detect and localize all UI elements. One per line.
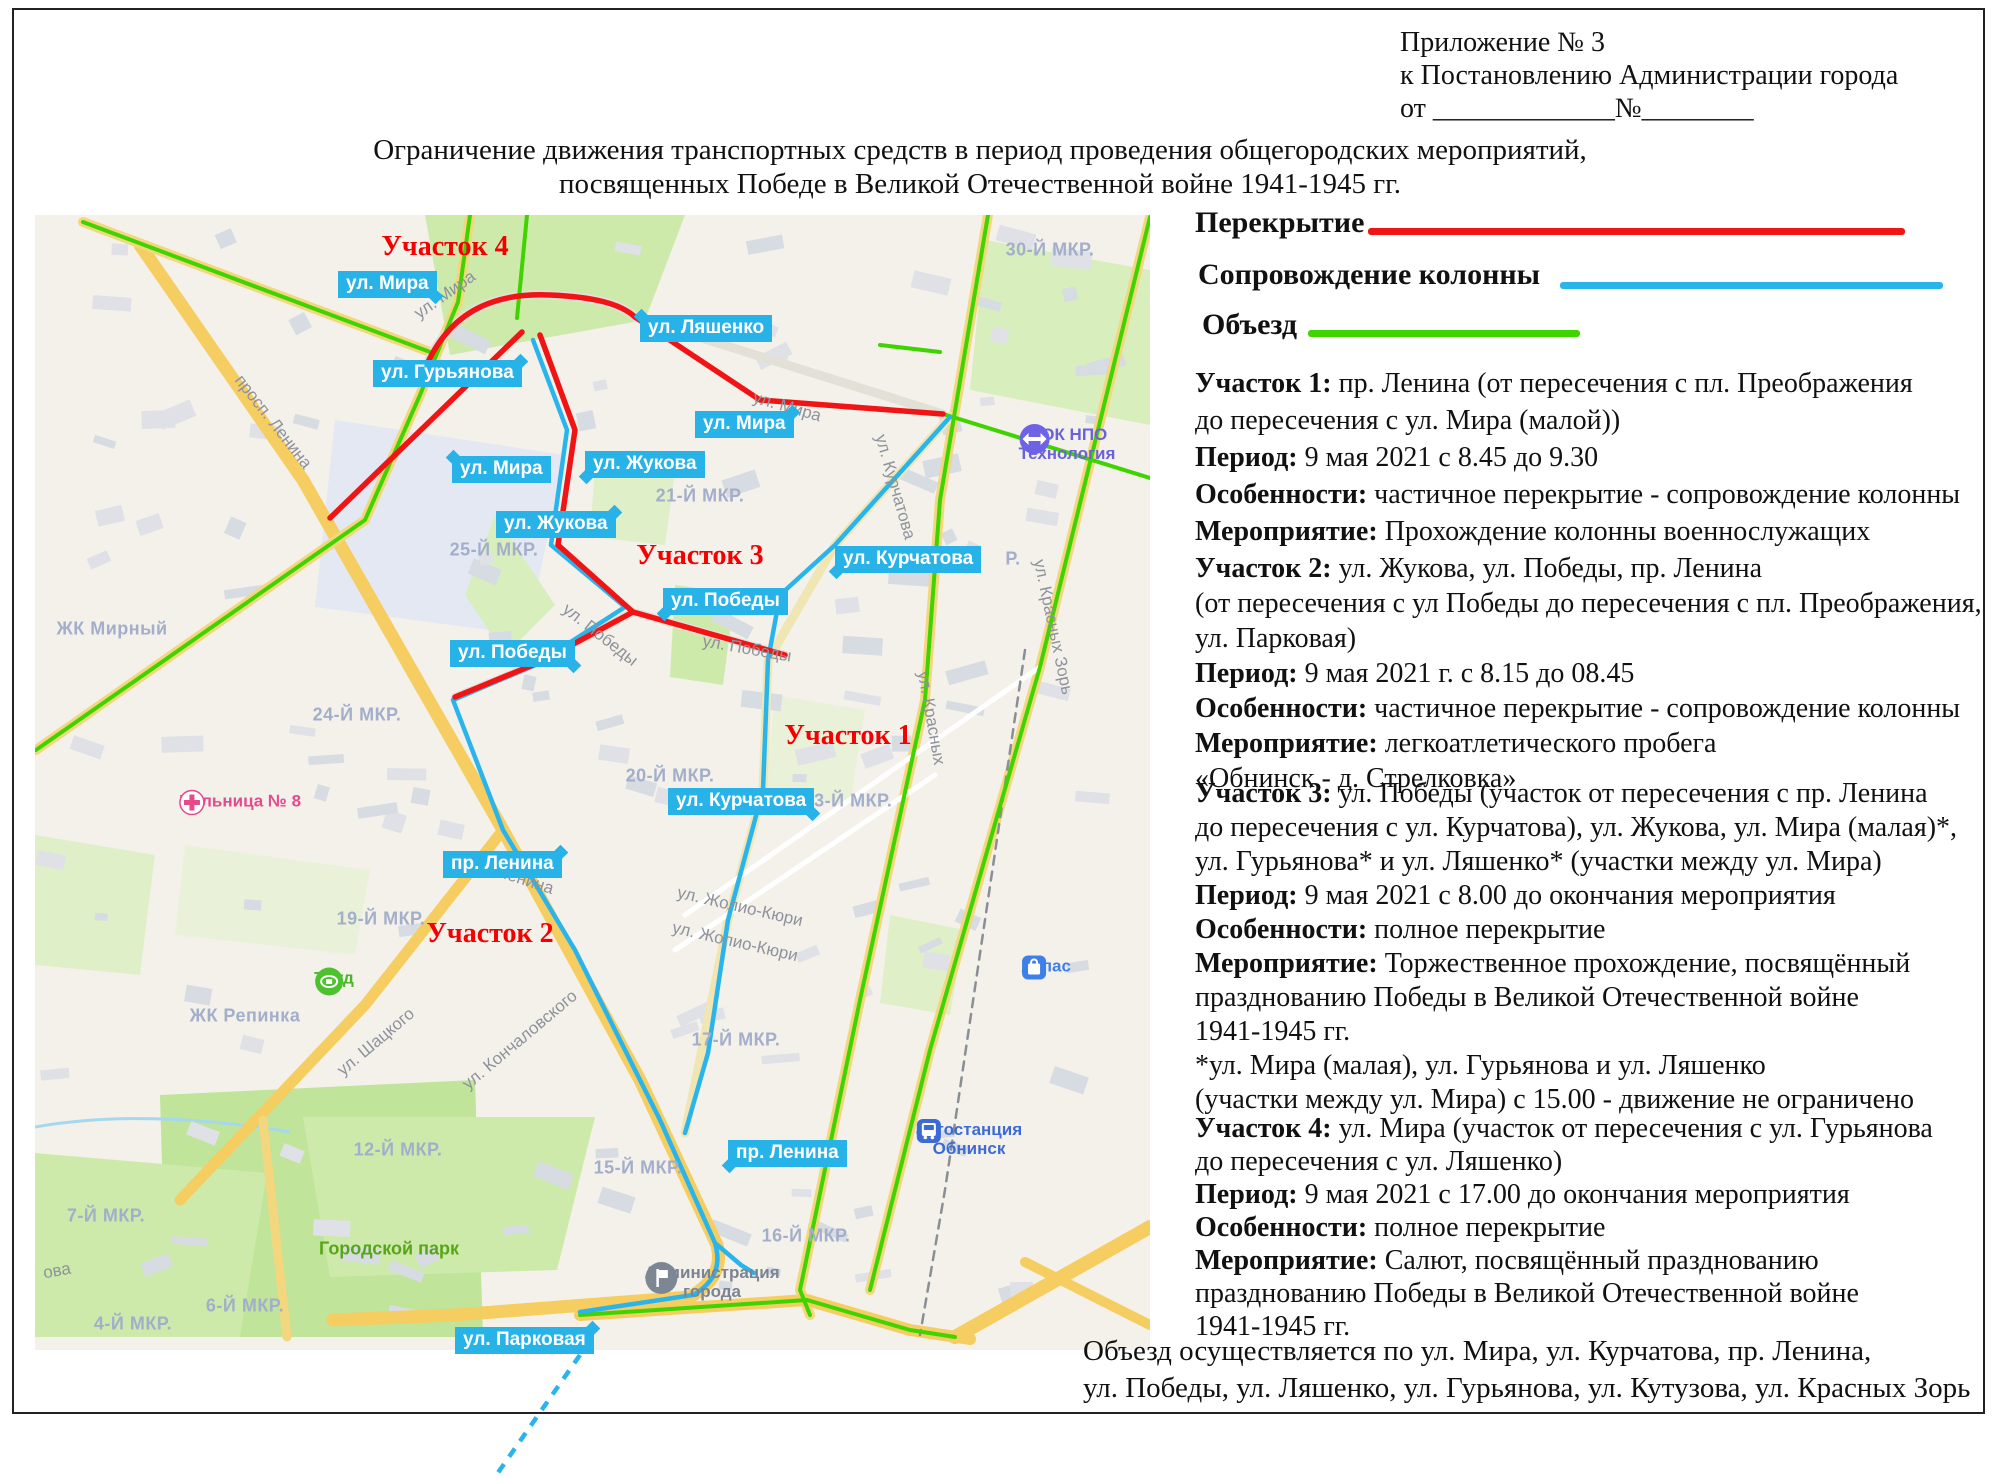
city-map: ул. Мираул. Ляшенкоул. Гурьяноваул. Мира…: [35, 215, 1150, 1477]
badge-pointer: [579, 469, 595, 485]
area-label: 24-Й МКР.: [313, 705, 402, 726]
annex-header: Приложение № 3к Постановлению Администра…: [1400, 26, 1898, 125]
legend-label-1: Перекрытие: [1195, 206, 1364, 240]
street-name-label: ул. Курчатова: [870, 432, 919, 541]
area-label: 25-Й МКР.: [450, 540, 539, 561]
document-page: Приложение № 3к Постановлению Администра…: [0, 0, 2000, 1477]
annex-line-3: от _____________№________: [1400, 92, 1898, 125]
detour-note: Объезд осуществляется по ул. Мира, ул. К…: [1083, 1333, 1970, 1407]
section-line: празднованию Победы в Великой Отечествен…: [1195, 1277, 1933, 1310]
place-shop: Атлас: [1021, 955, 1071, 976]
document-title: Ограничение движения транспортных средст…: [0, 133, 1960, 201]
street-badge-пр-ленина: пр. Ленина: [728, 1140, 847, 1167]
map-section-label-2: Участок 3: [636, 540, 763, 572]
badge-pointer: [634, 309, 650, 325]
street-name-label: ул. Победы: [701, 631, 793, 666]
section-line: Период: 9 мая 2021 г. с 8.15 до 08.45: [1195, 656, 1982, 691]
badge-pointer: [512, 354, 528, 370]
place-admin: Администрациягорода: [644, 1261, 779, 1301]
street-badge-ул-победы: ул. Победы: [663, 588, 788, 615]
section-line: Мероприятие: Салют, посвящённый празднов…: [1195, 1244, 1933, 1277]
section-line: ул. Парковая): [1195, 621, 1982, 656]
street-name-label: ул. Красных Зорь: [1029, 558, 1077, 697]
section-line: ул. Гурьянова* и ул. Ляшенко* (участки м…: [1195, 845, 1957, 879]
street-badge-ул-мира: ул. Мира: [695, 411, 794, 438]
area-label: 21-Й МКР.: [656, 486, 745, 507]
map-section-label-3: Участок 1: [784, 720, 911, 752]
section-line: Особенности: полное перекрытие: [1195, 913, 1957, 947]
area-label: 16-Й МКР.: [762, 1226, 851, 1247]
street-name-label: ул. Кончаловского: [458, 986, 581, 1094]
section-line: Период: 9 мая 2021 с 17.00 до окончания …: [1195, 1178, 1933, 1211]
street-badge-ул-мира: ул. Мира: [452, 456, 551, 483]
street-badge-ул-курчатова: ул. Курчатова: [835, 546, 981, 573]
badge-pointer: [657, 606, 673, 622]
section-line: 1941-1945 гг.: [1195, 1015, 1957, 1049]
section-line: Мероприятие: Прохождение колонны военнос…: [1195, 513, 1960, 550]
street-badge-ул-ляшенко: ул. Ляшенко: [640, 315, 772, 342]
street-name-label: просп. Ленина: [230, 371, 316, 473]
legend-line-1: [1368, 228, 1905, 235]
street-badge-ул-жукова: ул. Жукова: [496, 511, 616, 538]
badge-pointer: [584, 1321, 600, 1337]
annex-line-2: к Постановлению Администрации города: [1400, 59, 1898, 92]
area-label: 19-Й МКР.: [337, 909, 426, 930]
section-line: Особенности: полное перекрытие: [1195, 1211, 1933, 1244]
area-label: ЖК Мирный: [56, 619, 167, 640]
map-labels-layer: ул. Мираул. Ляшенкоул. Гурьяноваул. Мира…: [35, 215, 1150, 1477]
section-line: Мероприятие: легкоатлетического пробега: [1195, 726, 1982, 761]
section-block-3: Участок 3: ул. Победы (участок от пересе…: [1195, 777, 1957, 1117]
section-line: *ул. Мира (малая), ул. Гурьянова и ул. Л…: [1195, 1049, 1957, 1083]
section-line: Период: 9 мая 2021 с 8.45 до 9.30: [1195, 439, 1960, 476]
street-badge-пр-ленина: пр. Ленина: [443, 851, 562, 878]
section-block-4: Участок 4: ул. Мира (участок от пересече…: [1195, 1112, 1933, 1343]
area-label: ЖК Репинка: [190, 1006, 301, 1027]
legend-line-2: [1560, 282, 1943, 289]
place-sport: ФОК НПОТехнология: [1019, 423, 1116, 463]
legend-line-3: [1308, 330, 1580, 337]
area-label: 7-Й МКР.: [67, 1206, 145, 1227]
badge-pointer: [722, 1158, 738, 1174]
area-label: 15-Й МКР.: [594, 1158, 683, 1179]
area-label: 20-Й МКР.: [626, 766, 715, 787]
detour-line-2: ул. Победы, ул. Ляшенко, ул. Гурьянова, …: [1083, 1370, 1970, 1407]
place-hospital: Больница № 8: [179, 790, 301, 811]
legend-label-2: Сопровождение колонны: [1198, 258, 1540, 292]
detour-line-1: Объезд осуществляется по ул. Мира, ул. К…: [1083, 1333, 1970, 1370]
place-stadium: Труд: [314, 967, 354, 988]
section-line: Участок 2: ул. Жукова, ул. Победы, пр. Л…: [1195, 551, 1982, 586]
section-line: Мероприятие: Торжественное прохождение, …: [1195, 947, 1957, 981]
badge-pointer: [829, 564, 845, 580]
section-line: Период: 9 мая 2021 с 8.00 до окончания м…: [1195, 879, 1957, 913]
street-badge-ул-победы: ул. Победы: [450, 640, 575, 667]
street-badge-ул-парковая: ул. Парковая: [455, 1327, 594, 1354]
area-label: 12-Й МКР.: [354, 1140, 443, 1161]
street-badge-ул-гурьянова: ул. Гурьянова: [373, 360, 522, 387]
area-label: 4-Й МКР.: [94, 1314, 172, 1335]
section-line: до пересечения с ул. Курчатова), ул. Жук…: [1195, 811, 1957, 845]
area-label: 23-Й МКР.: [804, 791, 893, 812]
section-line: (от пересечения с ул Победы до пересечен…: [1195, 586, 1982, 621]
section-line: Особенности: частичное перекрытие - сопр…: [1195, 691, 1982, 726]
street-badge-ул-курчатова: ул. Курчатова: [668, 788, 814, 815]
street-badge-ул-мира: ул. Мира: [338, 271, 437, 298]
section-block-1: Участок 1: пр. Ленина (от пересечения с …: [1195, 365, 1960, 550]
area-label: 6-Й МКР.: [206, 1296, 284, 1317]
legend-label-3: Объезд: [1202, 308, 1297, 342]
section-line: Особенности: частичное перекрытие - сопр…: [1195, 476, 1960, 513]
map-section-label-4: Участок 2: [426, 918, 553, 950]
area-label: 17-Й МКР.: [692, 1030, 781, 1051]
section-block-2: Участок 2: ул. Жукова, ул. Победы, пр. Л…: [1195, 551, 1982, 796]
map-section-label-1: Участок 4: [381, 231, 508, 263]
street-name-label: ова: [42, 1259, 73, 1284]
annex-line-1: Приложение № 3: [1400, 26, 1898, 59]
badge-pointer: [446, 450, 462, 466]
section-line: до пересечения с ул. Ляшенко): [1195, 1145, 1933, 1178]
badge-pointer: [552, 845, 568, 861]
section-line: Участок 3: ул. Победы (участок от пересе…: [1195, 777, 1957, 811]
park-label: Городской парк: [319, 1239, 459, 1260]
title-line-2: посвященных Победе в Великой Отечественн…: [0, 167, 1960, 201]
section-line: до пересечения с ул. Мира (малой)): [1195, 402, 1960, 439]
area-label: 30-Й МКР.: [1006, 240, 1095, 261]
section-line: Участок 4: ул. Мира (участок от пересече…: [1195, 1112, 1933, 1145]
area-label: Р.: [1005, 549, 1020, 570]
street-name-label: ул. Красных: [913, 670, 949, 767]
section-line: празднованию Победы в Великой Отечествен…: [1195, 981, 1957, 1015]
street-name-label: ул. Шацкого: [333, 1004, 418, 1080]
section-line: Участок 1: пр. Ленина (от пересечения с …: [1195, 365, 1960, 402]
badge-pointer: [606, 505, 622, 521]
badge-pointer: [566, 658, 582, 674]
street-badge-ул-жукова: ул. Жукова: [585, 451, 705, 478]
place-bus: автостанцияОбнинск: [916, 1118, 1022, 1158]
title-line-1: Ограничение движения транспортных средст…: [0, 133, 1960, 167]
